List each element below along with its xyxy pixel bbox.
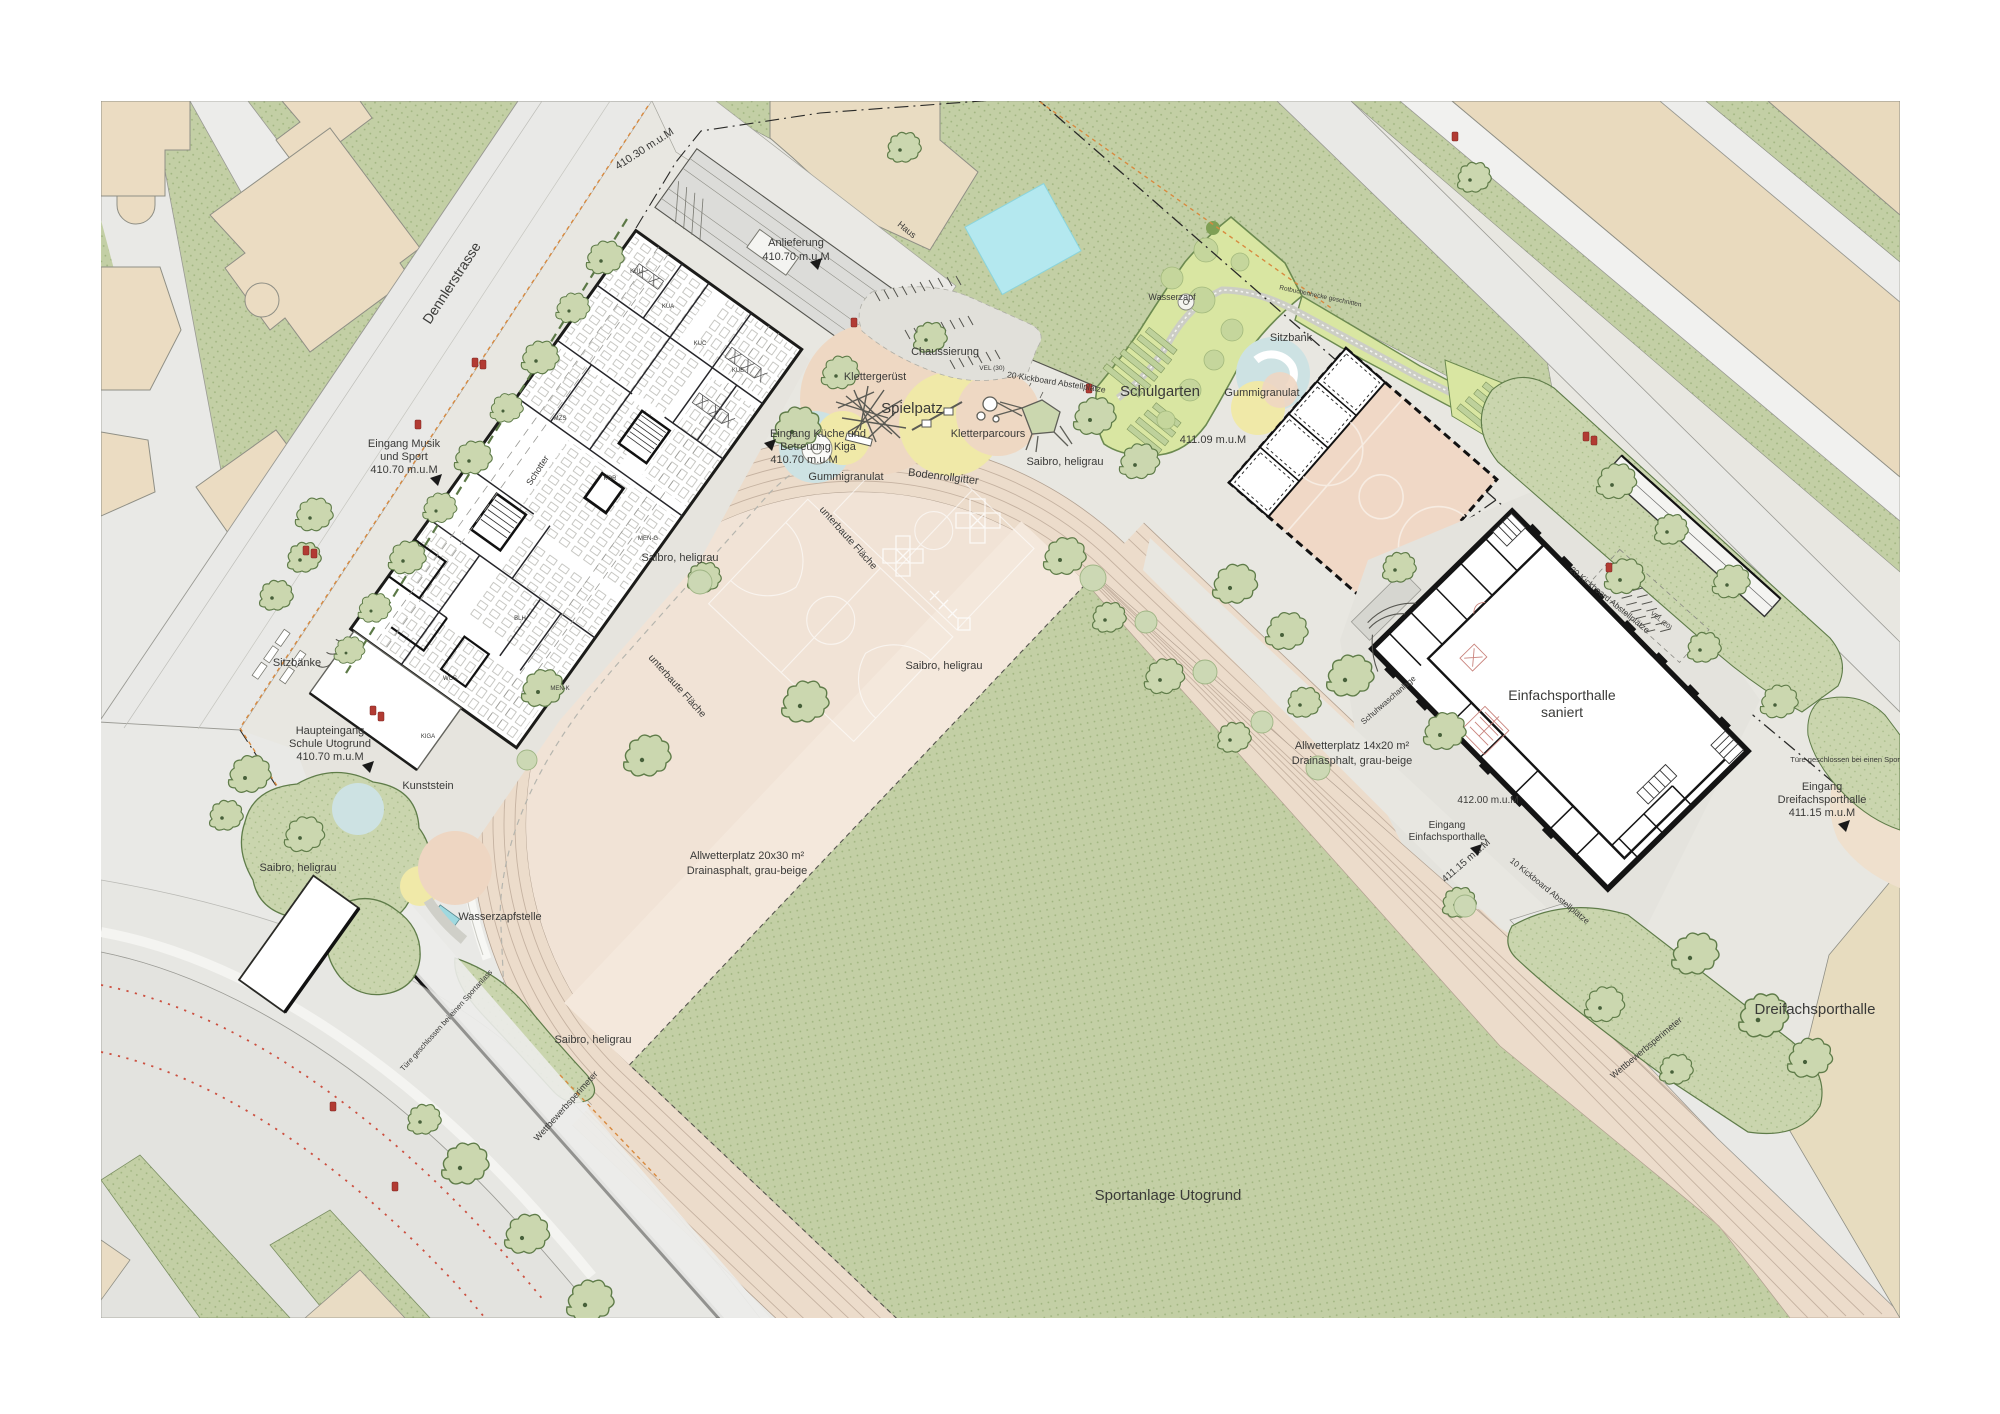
svg-text:Eingang Küche und: Eingang Küche und [770, 428, 866, 440]
svg-text:Allwetterplatz 20x30 m²: Allwetterplatz 20x30 m² [690, 850, 805, 862]
svg-text:KUL: KUL [630, 269, 642, 275]
svg-text:Kunststein: Kunststein [402, 780, 453, 792]
svg-text:Dreifachsporthalle: Dreifachsporthalle [1778, 794, 1867, 806]
svg-text:MEN-K: MEN-K [550, 686, 569, 692]
svg-text:Einfachsporthalle: Einfachsporthalle [1409, 832, 1486, 843]
svg-text:410.70 m.u.M: 410.70 m.u.M [296, 751, 363, 763]
svg-text:Anlieferung: Anlieferung [768, 237, 824, 249]
svg-text:Betreuung Kiga: Betreuung Kiga [780, 441, 857, 453]
svg-text:WCS: WCS [443, 676, 457, 682]
svg-text:Gummigranulat: Gummigranulat [808, 471, 883, 483]
svg-text:MEN-G: MEN-G [638, 536, 658, 542]
svg-text:KIGA: KIGA [421, 734, 435, 740]
svg-text:Schule Utogrund: Schule Utogrund [289, 738, 371, 750]
svg-text:Saibro, heligrau: Saibro, heligrau [905, 660, 982, 672]
svg-text:KOR: KOR [603, 476, 617, 482]
svg-text:Kletterparcours: Kletterparcours [951, 428, 1026, 440]
svg-text:Eingang Musik: Eingang Musik [368, 438, 441, 450]
svg-text:Saibro, heligrau: Saibro, heligrau [1026, 456, 1103, 468]
svg-text:MZS: MZS [554, 416, 567, 422]
svg-text:Wasserzapf: Wasserzapf [1148, 292, 1196, 302]
svg-text:410.70 m.u.M: 410.70 m.u.M [770, 454, 837, 466]
svg-text:Sitzbank: Sitzbank [1270, 332, 1313, 344]
svg-text:412.00 m.u.M: 412.00 m.u.M [1457, 795, 1518, 806]
svg-text:411.15 m.u.M: 411.15 m.u.M [1789, 807, 1855, 819]
svg-text:411.09 m.u.M: 411.09 m.u.M [1180, 434, 1246, 446]
svg-text:Drainasphalt, grau-beige: Drainasphalt, grau-beige [1292, 755, 1412, 767]
svg-text:Dreifachsporthalle: Dreifachsporthalle [1755, 1001, 1876, 1018]
svg-text:VEL (30): VEL (30) [979, 365, 1004, 372]
svg-text:410.70 m.u.M: 410.70 m.u.M [370, 464, 437, 476]
svg-text:Gummigranulat: Gummigranulat [1224, 387, 1299, 399]
svg-text:Saibro, heligrau: Saibro, heligrau [641, 552, 718, 564]
svg-text:Sportanlage Utogrund: Sportanlage Utogrund [1095, 1187, 1242, 1204]
svg-text:KUC: KUC [694, 341, 707, 347]
svg-text:saniert: saniert [1541, 704, 1583, 720]
svg-text:Schulgarten: Schulgarten [1120, 383, 1200, 400]
svg-text:Saibro, heligrau: Saibro, heligrau [259, 862, 336, 874]
svg-text:KUA: KUA [662, 304, 674, 310]
svg-text:Drainasphalt, grau-beige: Drainasphalt, grau-beige [687, 865, 807, 877]
svg-text:Eingang: Eingang [1429, 820, 1466, 831]
svg-text:Chaussierung: Chaussierung [911, 346, 979, 358]
svg-text:Saibro, heligrau: Saibro, heligrau [554, 1034, 631, 1046]
svg-text:Einfachsporthalle: Einfachsporthalle [1508, 687, 1616, 703]
svg-text:Wasserzapfstelle: Wasserzapfstelle [458, 911, 541, 923]
svg-text:BLH: BLH [514, 616, 526, 622]
svg-text:Allwetterplatz 14x20 m²: Allwetterplatz 14x20 m² [1295, 740, 1410, 752]
svg-text:Klettergerüst: Klettergerüst [844, 371, 906, 383]
svg-text:und Sport: und Sport [380, 451, 428, 463]
svg-text:Eingang: Eingang [1802, 781, 1842, 793]
svg-text:Haupteingang: Haupteingang [296, 725, 365, 737]
svg-text:KUE: KUE [732, 368, 744, 374]
svg-text:Sitzbänke: Sitzbänke [273, 657, 321, 669]
svg-text:Spielpatz: Spielpatz [881, 400, 943, 417]
